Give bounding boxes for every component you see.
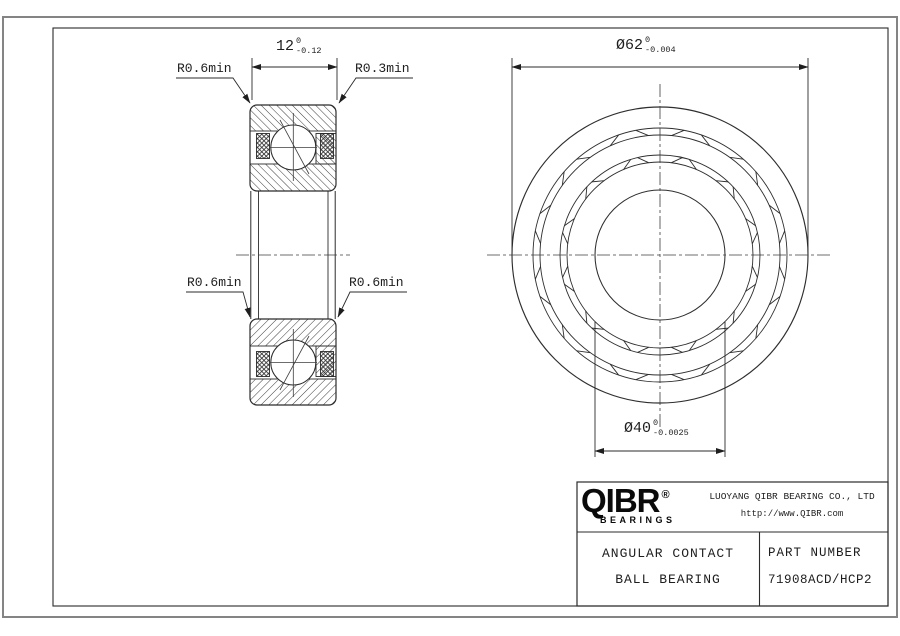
fillet-label-top-right: R0.3min [355,61,410,76]
bore-value: Ø40 [624,421,651,436]
fillet-label-top-left: R0.6min [177,61,232,76]
fillet-label-mid-left: R0.6min [187,275,242,290]
outer-diameter-dimension: Ø62 0 -0.004 [616,38,676,56]
brand-subtitle: BEARINGS [600,515,676,525]
section-view [236,105,350,405]
brand-name: QIBR [581,482,660,519]
bore-diameter-dimension: Ø40 0 -0.0025 [624,421,689,439]
brand-logo: QIBR® [581,484,670,517]
company-name: LUOYANG QIBR BEARING CO., LTD [697,491,887,502]
od-tol-lower: -0.004 [645,46,676,56]
part-number-label: PART NUMBER [768,546,862,560]
fillet-label-mid-right: R0.6min [349,275,404,290]
part-number-value: 71908ACD/HCP2 [768,573,872,587]
width-value: 12 [276,39,294,54]
engineering-drawing-page: R0.6min R0.3min R0.6min R0.6min 12 0 -0.… [0,0,900,636]
width-tol-lower: -0.12 [296,47,322,57]
width-dimension: 12 0 -0.12 [276,39,322,57]
product-name-line2: BALL BEARING [577,572,759,587]
cage-section [321,134,334,159]
cage-section [257,134,270,159]
company-website: http://www.QIBR.com [697,509,887,519]
registered-mark: ® [662,489,670,501]
product-name-line1: ANGULAR CONTACT [577,546,759,561]
od-value: Ø62 [616,38,643,53]
drawing-canvas [0,0,900,636]
bore-tol-lower: -0.0025 [653,429,689,439]
